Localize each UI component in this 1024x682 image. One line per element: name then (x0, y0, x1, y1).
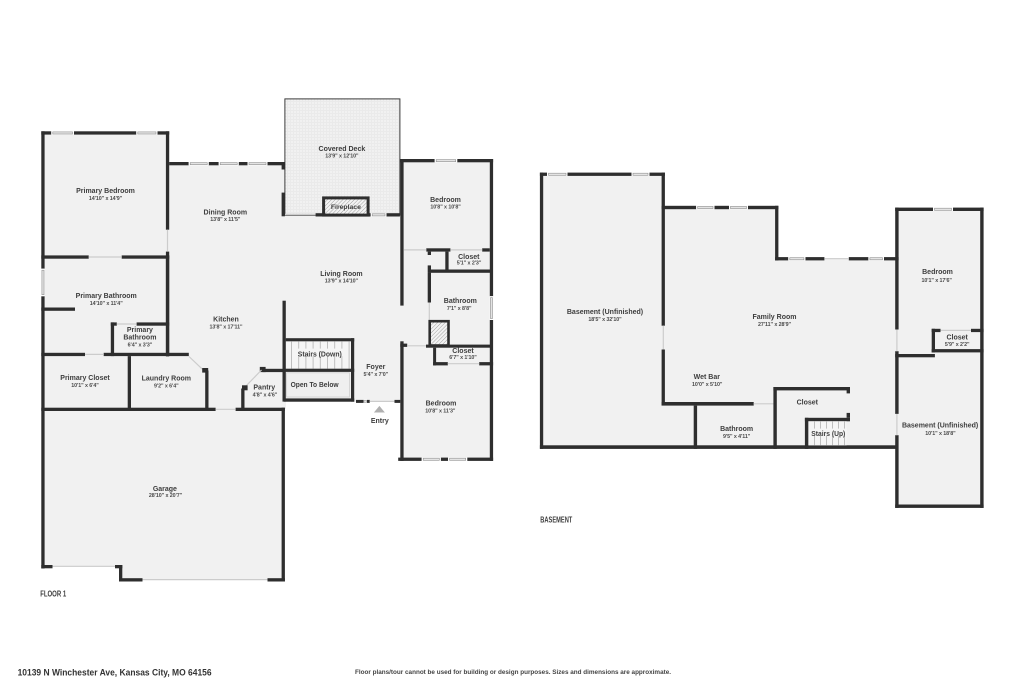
svg-text:Living Room: Living Room (320, 271, 362, 278)
svg-text:10'0" x 5'10": 10'0" x 5'10" (692, 382, 723, 388)
svg-text:Entry: Entry (371, 418, 389, 425)
svg-text:Bathroom: Bathroom (123, 334, 156, 341)
svg-text:BASEMENT: BASEMENT (540, 515, 573, 525)
svg-text:Stairs (Up): Stairs (Up) (811, 431, 845, 438)
svg-text:Foyer: Foyer (366, 364, 385, 371)
svg-text:FLOOR 1: FLOOR 1 (40, 589, 66, 599)
svg-text:7'1" x 8'8": 7'1" x 8'8" (447, 306, 472, 312)
svg-text:Primary Bathroom: Primary Bathroom (76, 293, 137, 300)
svg-text:Basement (Unfinished): Basement (Unfinished) (902, 422, 978, 429)
svg-text:Kitchen: Kitchen (213, 316, 239, 323)
svg-text:9'5" x 4'11": 9'5" x 4'11" (723, 434, 751, 440)
svg-text:5'4" x 7'0": 5'4" x 7'0" (364, 372, 389, 378)
svg-text:10'8" x 11'3": 10'8" x 11'3" (425, 408, 456, 414)
svg-text:Closet: Closet (946, 335, 968, 342)
svg-text:13'8" x 11'5": 13'8" x 11'5" (210, 217, 241, 223)
svg-text:9'2" x 6'4": 9'2" x 6'4" (154, 384, 179, 390)
svg-text:14'10" x 14'9": 14'10" x 14'9" (89, 196, 123, 202)
svg-text:13'9" x 12'10": 13'9" x 12'10" (325, 154, 359, 160)
svg-text:6'7" x 1'10": 6'7" x 1'10" (449, 355, 477, 361)
svg-text:Open To Below: Open To Below (291, 382, 340, 389)
svg-text:10'8" x 10'8": 10'8" x 10'8" (430, 205, 461, 211)
svg-text:Dining Room: Dining Room (204, 209, 248, 216)
svg-text:13'9" x 14'10": 13'9" x 14'10" (325, 279, 359, 285)
svg-text:Stairs (Down): Stairs (Down) (298, 352, 342, 359)
svg-text:Bedroom: Bedroom (426, 401, 457, 408)
svg-text:Laundry Room: Laundry Room (142, 376, 191, 383)
svg-text:14'10" x 11'4": 14'10" x 11'4" (90, 301, 123, 307)
svg-text:28'10" x 20'7": 28'10" x 20'7" (149, 493, 183, 499)
svg-text:4'8" x 4'6": 4'8" x 4'6" (253, 393, 278, 399)
svg-text:Bathroom: Bathroom (720, 426, 753, 433)
svg-text:5'9" x 2'2": 5'9" x 2'2" (945, 342, 970, 348)
svg-text:Basement (Unfinished): Basement (Unfinished) (567, 309, 643, 316)
svg-text:10'1" x 17'6": 10'1" x 17'6" (922, 278, 953, 284)
svg-text:Fireplace: Fireplace (331, 204, 361, 211)
svg-text:Primary Bedroom: Primary Bedroom (76, 188, 135, 195)
svg-text:10139 N Winchester Ave, Kansas: 10139 N Winchester Ave, Kansas City, MO … (18, 667, 212, 677)
svg-text:Closet: Closet (797, 400, 819, 407)
svg-text:Floor plans/tour cannot be use: Floor plans/tour cannot be used for buil… (355, 669, 671, 676)
svg-text:Wet Bar: Wet Bar (694, 374, 721, 381)
svg-text:Bathroom: Bathroom (444, 298, 477, 305)
svg-text:18'5" x 32'10": 18'5" x 32'10" (588, 317, 622, 323)
svg-text:Pantry: Pantry (253, 384, 275, 391)
svg-text:10'1" x 18'8": 10'1" x 18'8" (925, 431, 956, 437)
svg-text:13'8" x 17'11": 13'8" x 17'11" (210, 324, 243, 330)
svg-text:5'1" x 2'3": 5'1" x 2'3" (457, 261, 482, 267)
svg-text:Primary Closet: Primary Closet (60, 375, 110, 382)
svg-text:10'1" x 6'4": 10'1" x 6'4" (71, 383, 99, 389)
svg-text:Bedroom: Bedroom (922, 269, 953, 276)
svg-text:Primary: Primary (127, 327, 153, 334)
svg-text:Family Room: Family Room (753, 314, 797, 321)
svg-text:Covered Deck: Covered Deck (319, 146, 366, 153)
svg-text:27'11" x 28'9": 27'11" x 28'9" (758, 322, 791, 328)
svg-text:6'4" x 3'3": 6'4" x 3'3" (128, 343, 153, 349)
svg-text:Bedroom: Bedroom (430, 197, 461, 204)
